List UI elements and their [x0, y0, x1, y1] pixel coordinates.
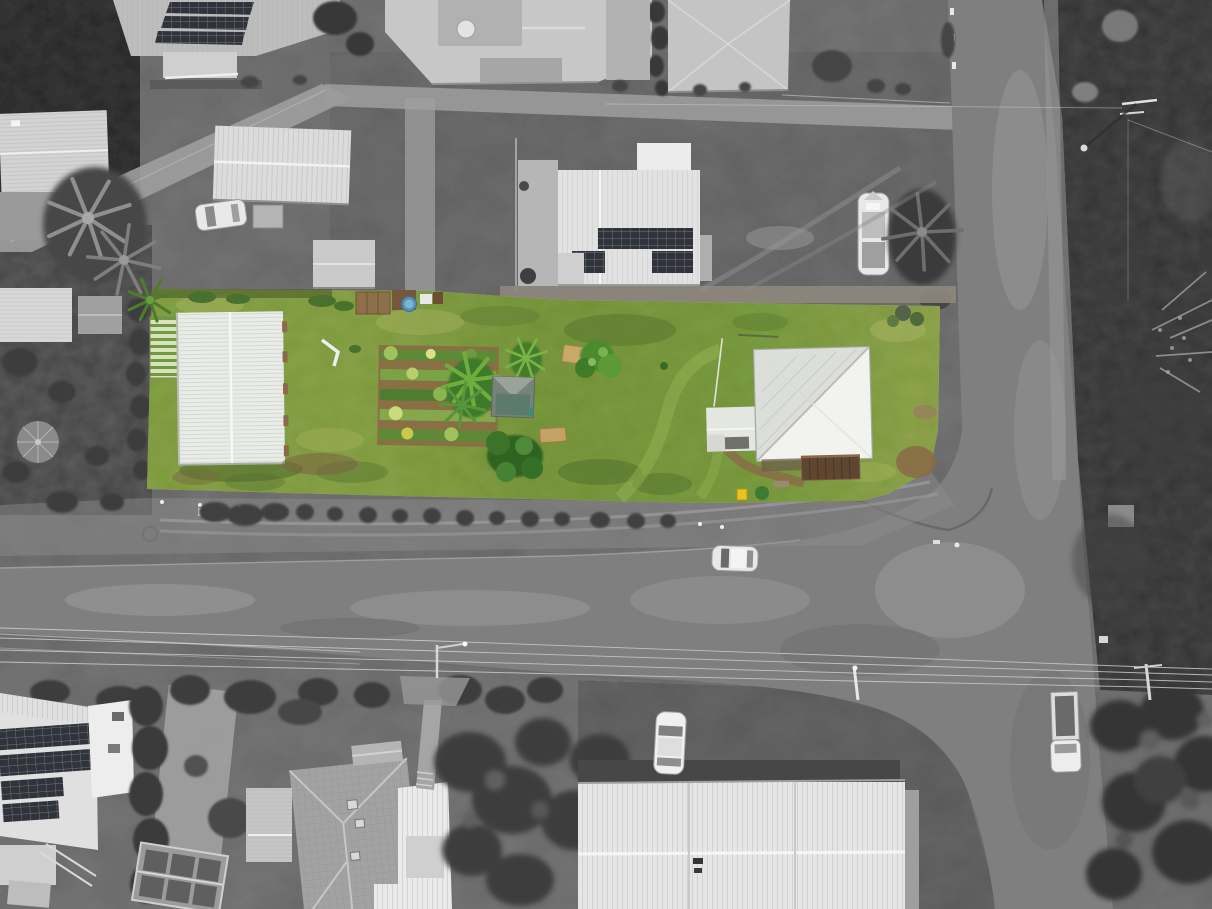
hay-bale [540, 427, 567, 443]
neighbour-patio [518, 160, 558, 286]
gazebo [17, 421, 59, 463]
green-shrub [755, 486, 769, 500]
parked-car-south [653, 711, 686, 774]
solar-array [652, 251, 693, 273]
long-shed-south [578, 760, 919, 909]
shed-wall [905, 790, 919, 909]
house-annex [706, 406, 757, 451]
garage-roof [246, 788, 292, 862]
solar-array [155, 2, 254, 45]
trailer [253, 205, 283, 228]
highlighted-lot [129, 279, 940, 529]
long-shed-north [213, 126, 351, 205]
garden-shed [491, 376, 534, 417]
annex-windows [725, 437, 749, 450]
aerial-photo [0, 0, 1212, 909]
yellow-bin [737, 489, 747, 500]
spa-pool [457, 20, 475, 38]
steps [774, 481, 789, 487]
utility-vehicle [1049, 692, 1082, 773]
shed-above-lot [313, 240, 375, 288]
white-box [420, 294, 432, 304]
house-top-right [606, 0, 790, 92]
caravan [858, 191, 889, 275]
hip-roof [754, 346, 873, 461]
patio [438, 0, 522, 46]
solar-array [598, 228, 693, 249]
car-on-road [712, 545, 759, 572]
dirt-patch [896, 446, 936, 478]
porch [480, 58, 562, 82]
